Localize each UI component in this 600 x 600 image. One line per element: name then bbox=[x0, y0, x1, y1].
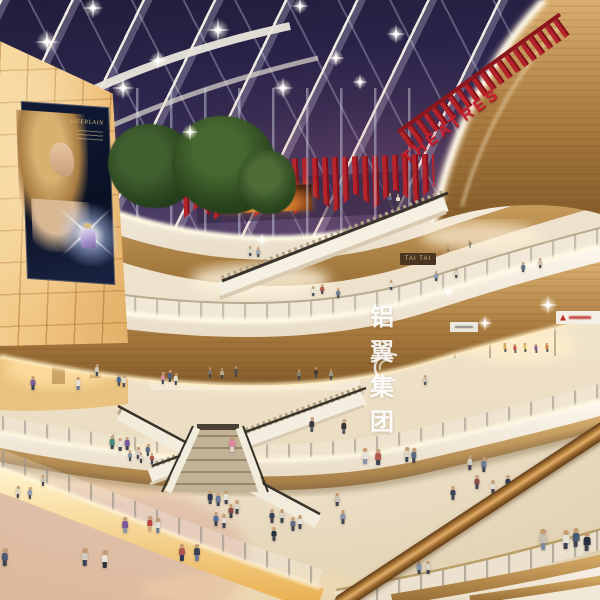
billboard-caption-lines bbox=[77, 130, 103, 142]
store-sign-text-blur bbox=[569, 316, 591, 319]
tai-tai-store-sign: TAI TAI bbox=[400, 253, 436, 265]
store-logo-mark bbox=[560, 315, 566, 321]
terrace-tree bbox=[238, 150, 296, 214]
store-sign-small bbox=[450, 322, 478, 332]
perfume-bottle bbox=[80, 228, 96, 249]
perfume-billboard: GUERLAIN bbox=[21, 101, 115, 285]
store-sign-red-logo bbox=[556, 311, 600, 324]
watermark: 铝翼集团 bbox=[370, 350, 404, 384]
watermark-text: 铝翼集团 bbox=[370, 297, 404, 437]
mall-atrium-scene: GUERLAIN THEATRES TAI TAI 铝翼集团 bbox=[0, 0, 600, 600]
store-sign-text-blur bbox=[455, 326, 473, 329]
